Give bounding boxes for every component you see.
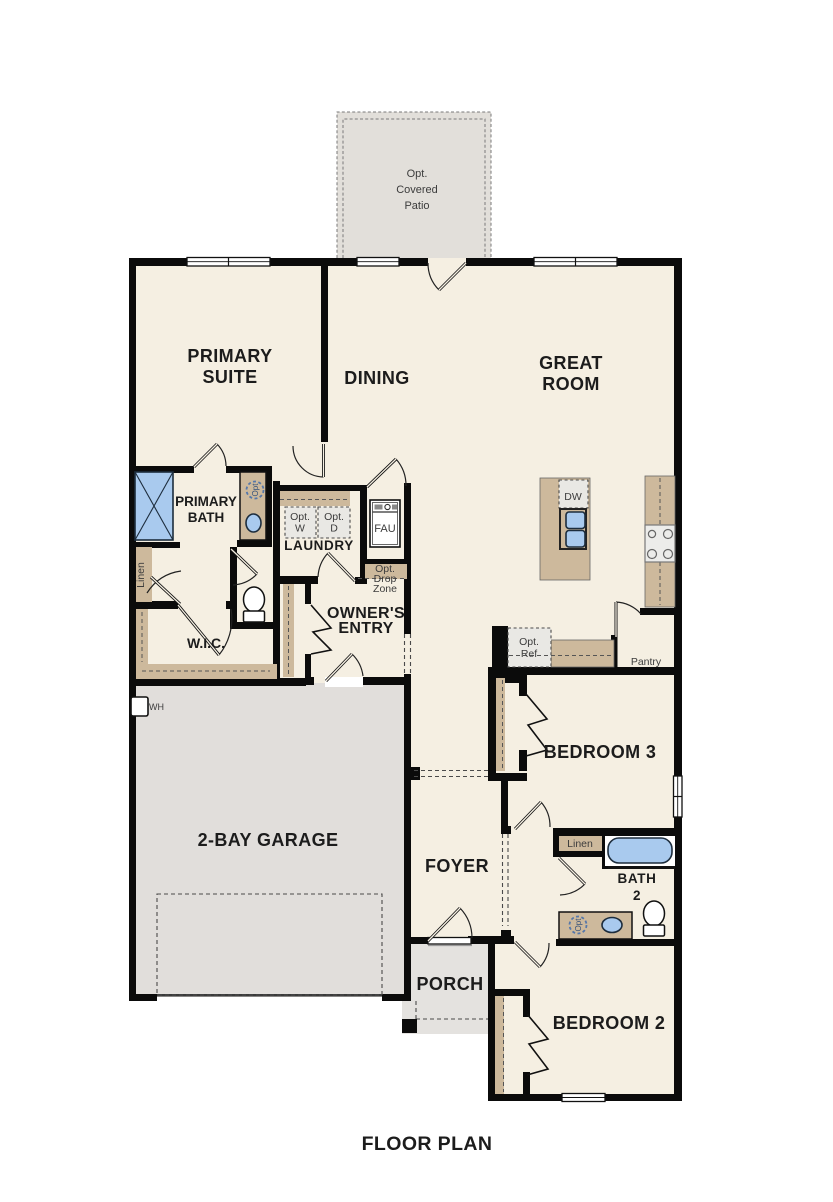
svg-text:Linen: Linen (135, 562, 147, 588)
svg-text:2-BAY GARAGE: 2-BAY GARAGE (198, 830, 339, 850)
svg-text:D: D (330, 523, 338, 535)
svg-text:FOYER: FOYER (425, 856, 489, 876)
svg-text:PRIMARY: PRIMARY (175, 494, 237, 509)
svg-text:Patio: Patio (404, 200, 429, 212)
svg-text:FLOOR PLAN: FLOOR PLAN (362, 1133, 493, 1155)
svg-text:PRIMARY: PRIMARY (187, 346, 272, 366)
svg-text:Opt.: Opt. (290, 511, 310, 523)
svg-text:DW: DW (564, 491, 582, 503)
svg-text:ROOM: ROOM (542, 374, 600, 394)
svg-text:Pantry: Pantry (631, 656, 662, 668)
svg-text:2: 2 (633, 888, 641, 903)
svg-text:Opt: Opt (251, 483, 260, 497)
svg-text:ENTRY: ENTRY (338, 620, 393, 637)
svg-text:BEDROOM 3: BEDROOM 3 (544, 742, 657, 762)
svg-text:LAUNDRY: LAUNDRY (284, 538, 354, 553)
svg-text:Opt: Opt (574, 918, 583, 932)
svg-text:W: W (295, 523, 305, 535)
svg-text:GREAT: GREAT (539, 353, 603, 373)
svg-text:Opt.: Opt. (519, 636, 539, 648)
svg-text:BEDROOM 2: BEDROOM 2 (553, 1013, 666, 1033)
svg-text:Covered: Covered (396, 184, 438, 196)
svg-text:DINING: DINING (344, 368, 409, 388)
svg-text:BATH: BATH (618, 871, 657, 886)
svg-text:WH: WH (149, 702, 164, 712)
svg-text:FAU: FAU (374, 523, 395, 535)
svg-text:PORCH: PORCH (416, 974, 483, 994)
svg-text:Opt.: Opt. (407, 168, 428, 180)
svg-text:Opt.: Opt. (324, 511, 344, 523)
svg-text:BATH: BATH (188, 510, 225, 525)
svg-text:SUITE: SUITE (202, 367, 257, 387)
svg-text:W.I.C.: W.I.C. (187, 635, 225, 651)
svg-text:Linen: Linen (567, 838, 593, 850)
svg-text:Ref: Ref (521, 648, 537, 660)
svg-text:Zone: Zone (373, 583, 397, 595)
